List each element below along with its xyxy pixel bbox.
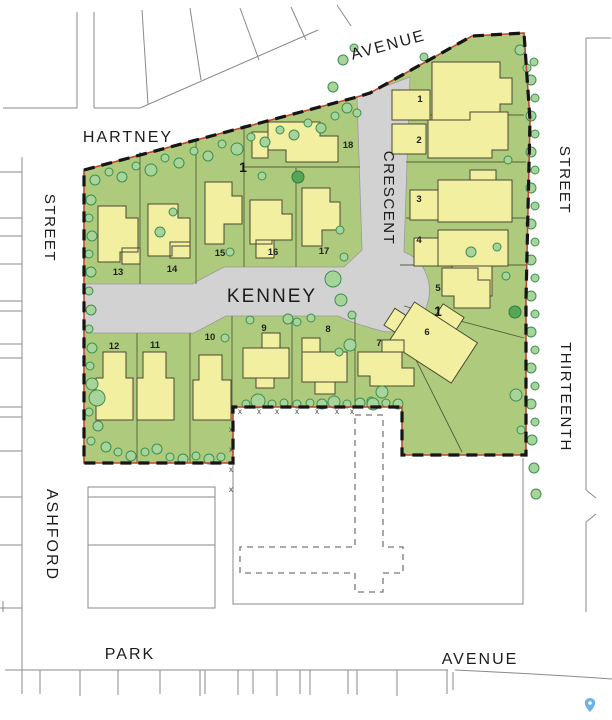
lot-number-5: 5 [435,283,441,294]
marker-1-east: 1 [434,303,442,319]
lot-number-17: 17 [319,246,330,257]
lot-number-14: 14 [167,264,178,275]
site-plan-canvas: xxx xxx x xxx x HARTNEY AVENUE STREET ST… [0,0,612,720]
street-east-label: STREET [556,146,573,214]
lot-number-6: 6 [424,327,429,338]
crescent-label: CRESCENT [380,151,397,246]
lot-number-12: 12 [109,341,120,352]
lot-number-15: 15 [215,248,226,259]
street-west-label: STREET [41,194,58,262]
lot-number-9: 9 [261,323,266,334]
thirteenth-label: THIRTEENTH [557,342,574,452]
marker-1-north: 1 [239,159,247,175]
fence-marks: xxx xxx x xxx x [229,407,354,494]
lot-number-1: 1 [417,94,423,105]
svg-text:x: x [229,485,233,494]
svg-text:x: x [238,407,242,416]
lot-number-11: 11 [150,340,161,351]
lot-number-10: 10 [205,332,216,343]
avenue-top-label: AVENUE [349,27,427,63]
ashford-label: ASHFORD [43,489,60,581]
lot-number-16: 16 [268,247,279,258]
lot-number-8: 8 [325,324,330,335]
lot-number-7: 7 [376,338,381,349]
existing-building-outline [240,415,403,592]
park-label: PARK [105,646,155,663]
lot-number-18: 18 [343,140,354,151]
lot-number-2: 2 [416,135,421,146]
svg-text:x: x [229,465,233,474]
lot-number-3: 3 [416,194,421,205]
svg-text:x: x [275,407,279,416]
map-pin-icon[interactable] [585,698,595,712]
lot-number-13: 13 [113,267,124,278]
kenney-label: KENNEY [227,286,317,307]
svg-text:x: x [257,407,261,416]
hartney-label: HARTNEY [83,129,173,146]
lot-number-4: 4 [416,235,422,246]
site-plan: xxx xxx x xxx x HARTNEY AVENUE STREET ST… [0,0,612,720]
avenue-south-label: AVENUE [442,651,519,668]
